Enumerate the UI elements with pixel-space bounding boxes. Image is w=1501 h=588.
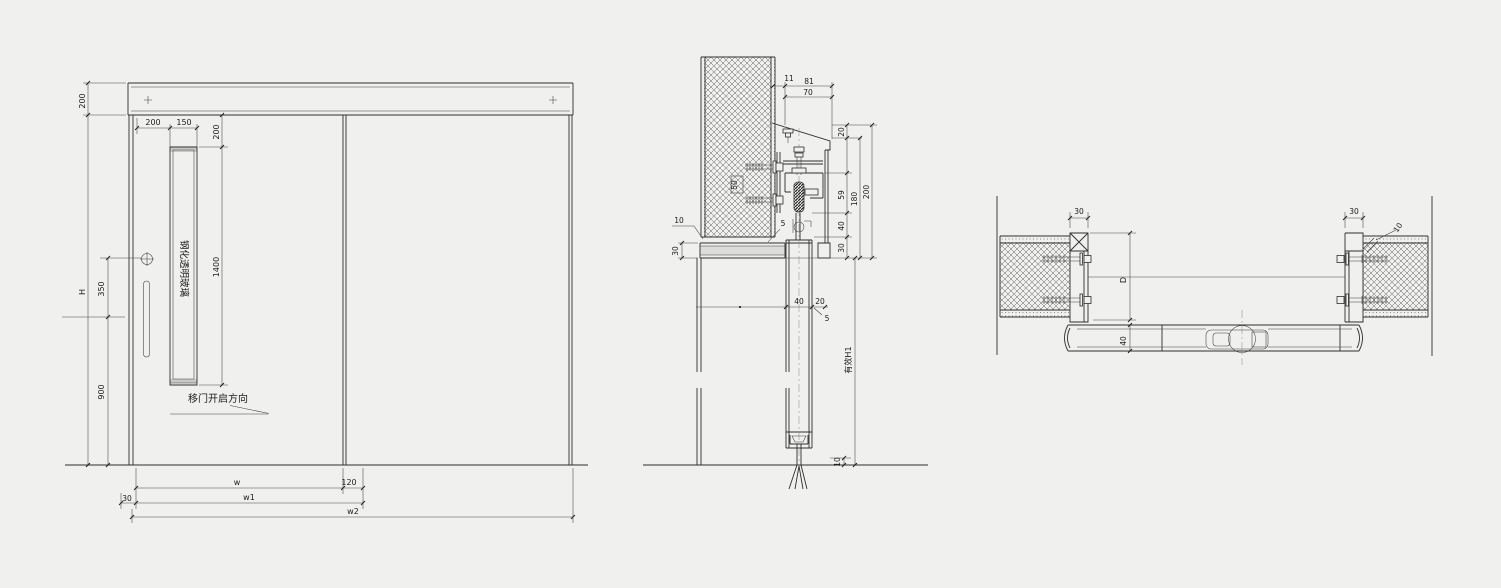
dim-inner-height: 180 [850,192,859,207]
dim-left-jamb: 30 [1074,207,1084,216]
dim-leaf-width: w [234,478,241,487]
dim-edge-offset: 30 [122,494,132,503]
dim-door-height: H [78,289,87,295]
anchor-bolt-head-2 [776,196,783,204]
anchor-bolt-washer-1 [773,161,776,173]
cad-sheet: 200 H 350 900 200 150 200 1400 钢化透明玻璃 30… [0,0,1501,588]
dim-glass-width: 150 [176,118,191,127]
dim-overlap: 120 [341,478,356,487]
elevation-dimension-lines [62,83,573,523]
dim-offset11: 11 [784,74,794,83]
dim-right-jamb: 30 [1349,207,1359,216]
dim-glass-height: 1400 [212,257,221,277]
jamb-bolt-head-l2 [1084,297,1091,304]
right-wall-hatch [1363,243,1428,310]
right-wall-plaster-bottom [1363,310,1428,317]
dim-glass-top-offset: 200 [212,124,221,139]
dim-width2: w2 [347,507,359,516]
dim-lintel-height: 30 [671,246,680,256]
dim-gap-top: 5 [781,219,786,228]
dim-track-width: 70 [803,88,813,97]
dim-leaf-thickness: 40 [794,297,804,306]
jamb-bolt-washer-r1 [1346,253,1349,265]
plan-details [1042,230,1396,347]
left-wall-plaster-top [1000,236,1070,243]
jamb-bolt-head-r1 [1337,256,1344,263]
jamb-bolt-washer-l1 [1080,253,1083,265]
cover-bolt-nut [786,133,791,137]
glass-top-bead [170,147,197,152]
lintel-fill [700,246,785,255]
elevation-dimension-ticks [86,81,575,519]
jamb-bolt-head-r2 [1337,297,1344,304]
dim-hanger: 40 [837,221,846,231]
hanger-bolt-nut-2 [795,153,803,157]
anchor-bolt-head-1 [776,163,783,171]
dim-header-height: 200 [78,93,87,108]
track-roller-wheel [794,182,804,212]
hanger-bolt-plate [792,168,806,173]
lock-handle [1213,333,1230,346]
dim-lock-offset: 350 [97,281,106,296]
dim-seal: 5 [825,314,830,323]
hanger-bolt-nut-top [794,147,804,152]
dim-track-zone: 59 [837,190,846,200]
jamb-bolt-washer-r2 [1346,294,1349,306]
jamb-bolt-head-l1 [1084,256,1091,263]
dim-pocket-depth: D [1119,277,1128,283]
left-wall-hatch [1000,243,1070,310]
anchor-bolt-washer-2 [773,194,776,206]
dim-width1: w1 [243,493,255,502]
dim-total-height: 200 [862,185,871,200]
drawing-canvas: 200 H 350 900 200 150 200 1400 钢化透明玻璃 30… [0,0,1501,588]
dim-plan-leaf-thickness: 40 [1119,336,1128,346]
dim-floor-clearance: 10 [833,457,842,467]
wall-hatch [705,57,771,237]
left-wall-plaster-bottom [1000,310,1070,317]
plan-dimension-ticks [1068,216,1365,353]
dim-total81: 81 [804,77,814,86]
effective-height-label: 有效H1 [843,346,853,373]
door-handle [144,281,150,357]
plan-view: 30 30 10 D 40 [997,196,1432,365]
jamb-bolt-washer-l2 [1080,294,1083,306]
section-view: 11 81 70 20 59 180 200 40 30 10 30 50 5 … [643,57,928,489]
glass-bottom-bead [170,379,197,383]
dim-side-gap: 20 [815,297,825,306]
elevation-outline [65,83,588,465]
dim-lintel: 30 [837,243,846,253]
cover-bolt-head [783,129,793,133]
carriage-plate [805,189,818,195]
dim-handle-height: 900 [97,384,106,399]
elevation-view: 200 H 350 900 200 150 200 1400 钢化透明玻璃 30… [62,81,588,523]
opening-direction-label: 移门开启方向 [188,392,248,405]
dim-plaster: 10 [1392,221,1405,234]
dim-plaster-left: 10 [674,216,684,225]
wall-plaster-left [701,57,705,237]
dim-glass-left-offset: 200 [145,118,160,127]
dim-embed-plate: 50 [730,180,739,190]
dim-cover-top: 20 [837,127,846,137]
section-outline [643,57,928,489]
glass-material-label: 钢化透明玻璃 [178,240,190,297]
